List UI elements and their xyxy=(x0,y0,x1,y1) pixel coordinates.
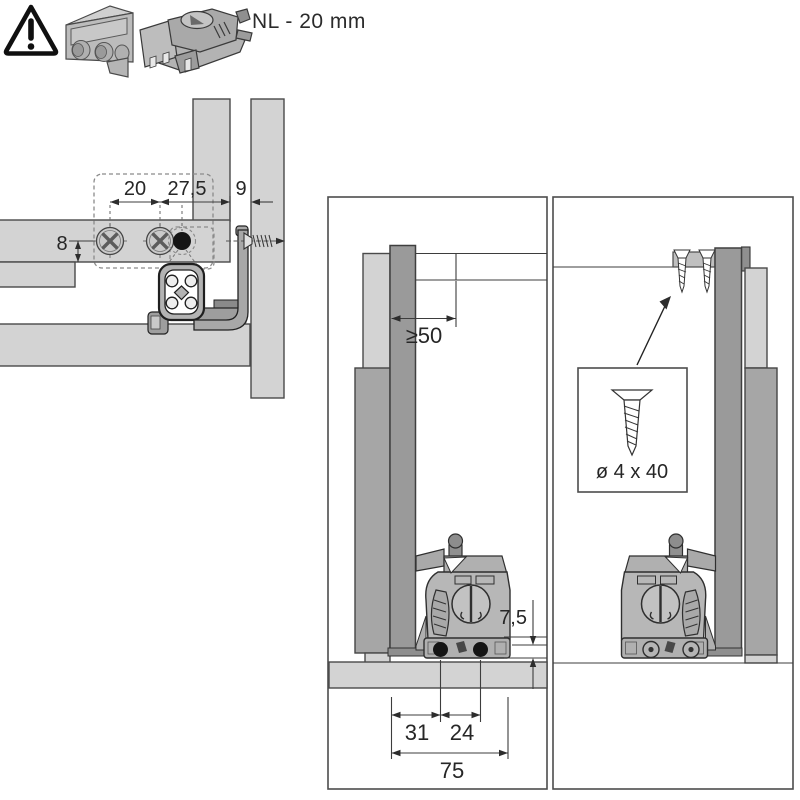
screw-detail-box: ø 4 x 40 xyxy=(578,368,687,492)
screw-size-label: ø 4 x 40 xyxy=(596,461,668,483)
front-panel-foot-right xyxy=(745,655,777,663)
installation-diagram: NL - 20 mm 20 27,5 9 xyxy=(0,0,800,800)
drawer-front-panel xyxy=(390,246,416,652)
middle-installation-panel: ≥50 7,5 xyxy=(328,197,547,789)
locking-device-part-icon xyxy=(140,9,252,73)
cabinet-back-panel xyxy=(251,99,284,398)
front-panel-upper xyxy=(363,254,390,369)
cover-cap-part-icon xyxy=(66,6,133,77)
left-section-diagram: 20 27,5 9 8 xyxy=(0,99,285,398)
latch-hole-rear xyxy=(473,642,488,657)
nl-length-label: NL - 20 mm xyxy=(252,10,366,33)
dim-min50-label: ≥50 xyxy=(406,323,443,348)
dim-8-label: 8 xyxy=(56,233,67,255)
warning-icon xyxy=(6,7,56,54)
dim-24-label: 24 xyxy=(450,720,474,745)
front-panel-upper-right xyxy=(745,268,767,368)
front-panel-lower-right xyxy=(745,368,777,655)
drawer-front-panel-right xyxy=(715,248,742,652)
dim-31-label: 31 xyxy=(405,720,429,745)
header: NL - 20 mm xyxy=(6,6,366,77)
cabinet-bottom-bar xyxy=(329,662,547,688)
latch-hole-front xyxy=(433,642,448,657)
front-panel-lower xyxy=(355,368,390,653)
drawer-bottom-lower-panel xyxy=(0,262,75,287)
dim-27-5-label: 27,5 xyxy=(168,178,207,200)
dim-7-5-label: 7,5 xyxy=(499,607,527,629)
dim-75-label: 75 xyxy=(440,758,464,783)
dim-9-label: 9 xyxy=(235,178,246,200)
dim-20-label: 20 xyxy=(124,178,146,200)
right-installation-panel: ø 4 x 40 xyxy=(553,197,793,789)
